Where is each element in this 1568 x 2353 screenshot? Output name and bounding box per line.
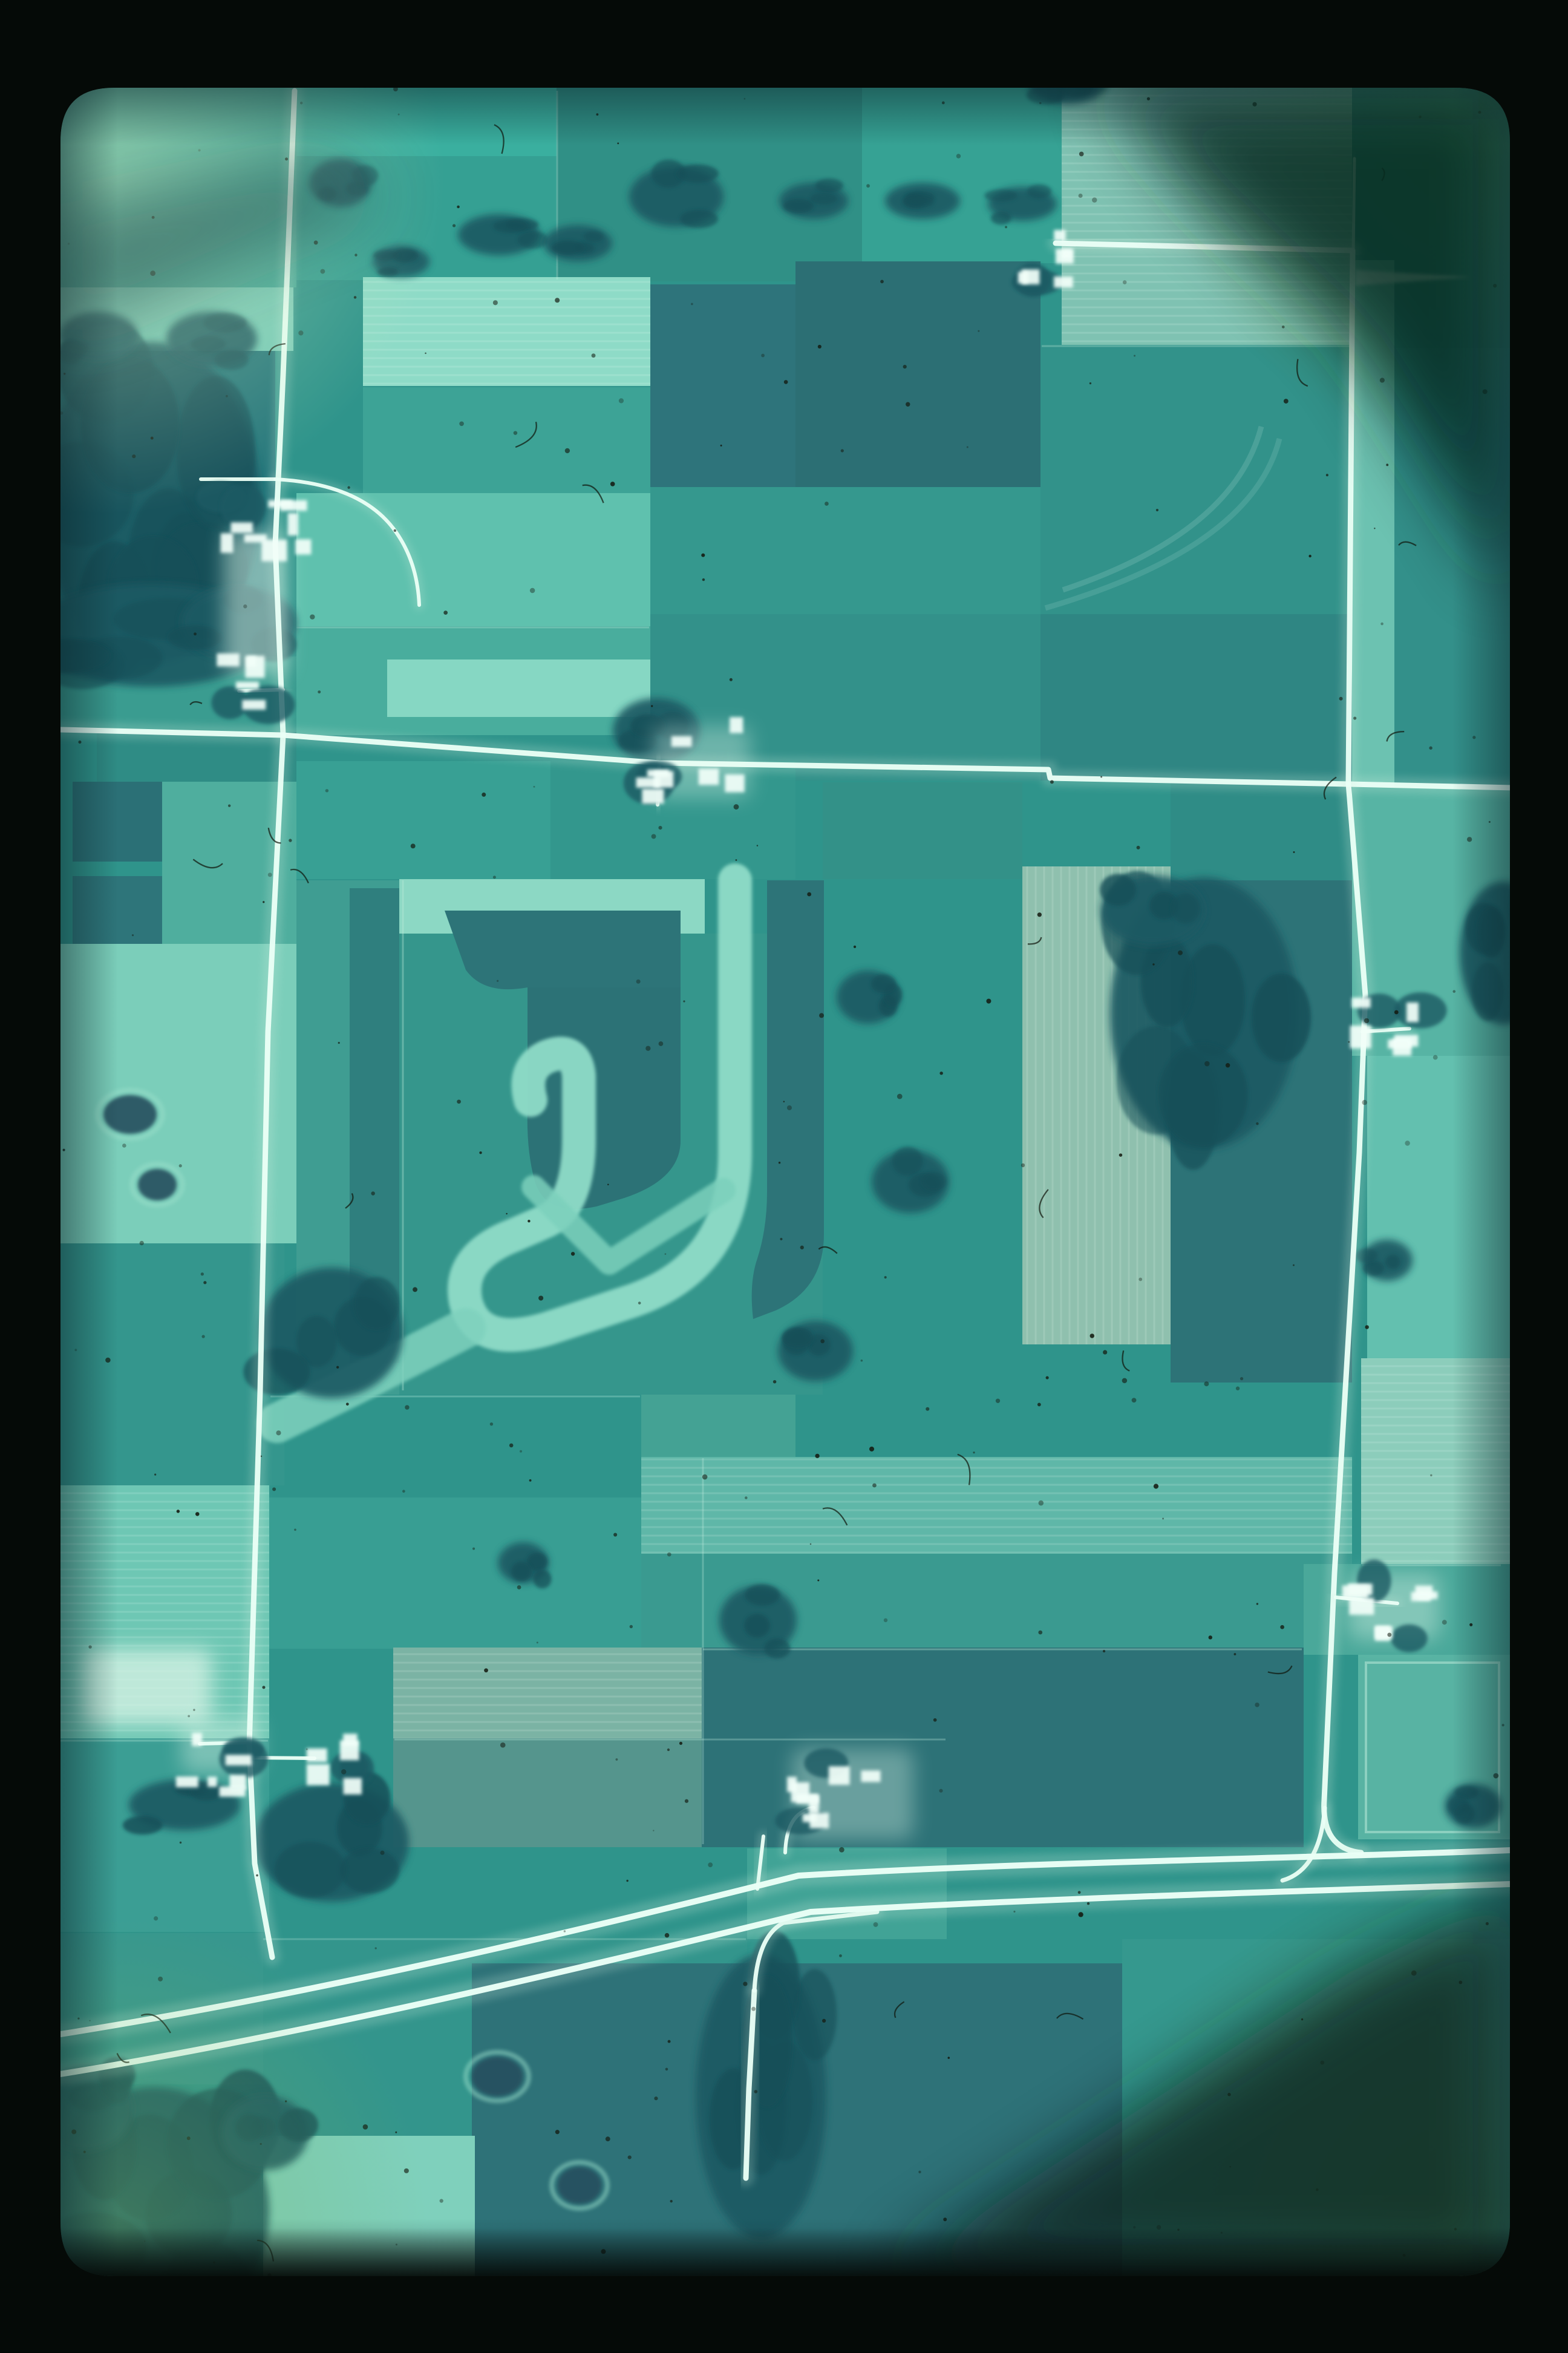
dust-speck xyxy=(380,1851,384,1855)
dust-speck xyxy=(533,786,535,788)
dust-speck xyxy=(256,1874,258,1877)
dust-speck xyxy=(606,2136,610,2141)
dust-speck xyxy=(1122,1378,1128,1384)
dust-speck xyxy=(659,1041,664,1046)
dust-speck xyxy=(1037,1402,1041,1406)
dust-speck xyxy=(154,1916,158,1920)
dust-speck xyxy=(289,839,292,842)
dust-speck xyxy=(490,1422,493,1425)
dust-speck xyxy=(986,999,991,1004)
dust-speck xyxy=(1326,474,1328,476)
dust-speck xyxy=(268,872,272,877)
farm-building xyxy=(221,533,234,552)
dust-speck xyxy=(679,1742,682,1745)
farm-building xyxy=(192,1733,202,1746)
dust-speck xyxy=(425,353,426,355)
dust-speck xyxy=(720,445,722,447)
dust-speck xyxy=(195,1512,200,1516)
dust-speck xyxy=(318,690,321,693)
field-rows-texture xyxy=(641,1457,1352,1554)
bottom-mount-fade xyxy=(60,2228,1510,2276)
dust-speck xyxy=(479,1151,482,1154)
farm-building xyxy=(642,789,664,804)
dust-speck xyxy=(869,1447,874,1451)
tree-clump xyxy=(892,1147,923,1176)
farm-building xyxy=(1406,1003,1419,1022)
tree-clump xyxy=(1252,974,1311,1062)
dust-speck xyxy=(839,1847,844,1853)
dust-speck xyxy=(1038,1631,1042,1635)
farm-building xyxy=(829,1766,850,1785)
farm-building xyxy=(295,539,311,554)
dust-speck xyxy=(336,1366,339,1369)
dust-speck xyxy=(1154,1484,1158,1488)
tree-clump xyxy=(680,210,718,228)
dust-speck xyxy=(341,1769,346,1774)
dust-speck xyxy=(820,1339,825,1343)
dust-speck xyxy=(537,1641,538,1643)
dust-speck xyxy=(1021,1163,1025,1167)
dust-speck xyxy=(1374,528,1375,529)
dust-speck xyxy=(1353,716,1356,719)
dust-speck xyxy=(154,1473,156,1475)
dust-speck xyxy=(1123,280,1127,284)
dust-speck xyxy=(1134,355,1135,356)
dust-speck xyxy=(1050,780,1054,784)
dust-speck xyxy=(1156,509,1158,511)
dust-speck xyxy=(371,1191,374,1195)
dust-speck xyxy=(193,1709,195,1710)
farm-shade-tree xyxy=(1394,992,1447,1028)
dust-speck xyxy=(996,1399,1000,1403)
dust-speck xyxy=(978,330,979,332)
dust-speck xyxy=(459,421,464,426)
dust-speck xyxy=(402,1490,405,1493)
dust-speck xyxy=(779,1162,780,1163)
farm-building xyxy=(671,736,692,747)
dust-speck xyxy=(272,1487,276,1491)
dust-speck xyxy=(1293,1265,1295,1266)
dust-speck xyxy=(497,980,498,982)
dust-speck xyxy=(784,380,788,384)
dust-speck xyxy=(1013,1911,1015,1913)
dust-speck xyxy=(1430,1474,1432,1476)
dust-speck xyxy=(1386,463,1388,466)
tree-clump xyxy=(810,193,837,205)
dust-speck xyxy=(1087,1902,1089,1905)
dust-speck xyxy=(800,1246,804,1249)
dust-speck xyxy=(1092,197,1097,202)
tree-clump xyxy=(1171,893,1200,923)
dust-speck xyxy=(658,826,662,830)
farm-building xyxy=(343,1778,362,1795)
field-patch xyxy=(296,493,650,626)
dust-speck xyxy=(177,1510,180,1513)
dust-speck xyxy=(702,1474,708,1480)
dust-speck xyxy=(443,610,448,615)
field-patch xyxy=(363,387,650,493)
dust-speck xyxy=(506,1213,507,1214)
dust-speck xyxy=(1293,851,1295,853)
dust-speck xyxy=(1348,1041,1350,1043)
dust-speck xyxy=(685,1799,688,1803)
dust-speck xyxy=(874,1922,878,1927)
dust-speck xyxy=(493,300,498,305)
dust-speck xyxy=(201,1272,204,1275)
dust-speck xyxy=(1364,1018,1369,1023)
dust-speck xyxy=(310,614,315,619)
dust-speck xyxy=(1005,226,1007,228)
farm-building xyxy=(787,1777,797,1792)
dust-speck xyxy=(1103,1350,1107,1354)
tree-clump xyxy=(991,212,1011,224)
farm-building xyxy=(242,700,266,710)
dust-speck xyxy=(668,2040,671,2043)
tree-clump xyxy=(783,199,814,214)
dust-speck xyxy=(761,354,765,358)
dust-speck xyxy=(1204,1061,1210,1067)
dust-speck xyxy=(736,859,737,861)
farm-building xyxy=(280,500,307,511)
dust-speck xyxy=(819,1013,824,1018)
dust-speck xyxy=(262,1686,265,1689)
tree-clump xyxy=(168,626,222,650)
farm-building xyxy=(1352,998,1371,1008)
dust-speck xyxy=(180,1842,181,1844)
dust-speck xyxy=(818,345,822,349)
edge-fade-left xyxy=(60,88,118,2276)
dust-speck xyxy=(374,1947,376,1949)
dust-speck xyxy=(783,1101,785,1102)
dust-speck xyxy=(773,1380,776,1383)
dust-speck xyxy=(933,1718,937,1722)
pond xyxy=(472,2057,523,2096)
dust-speck xyxy=(338,1042,340,1044)
tree-clump xyxy=(340,1848,399,1893)
farm-building xyxy=(725,774,744,793)
dust-speck xyxy=(926,1407,929,1411)
dust-speck xyxy=(884,1276,887,1278)
tree-clump xyxy=(494,220,528,233)
dust-speck xyxy=(500,1743,506,1748)
dust-speck xyxy=(807,892,811,897)
dust-speck xyxy=(555,2130,560,2134)
dust-speck xyxy=(1079,152,1084,157)
farm-building xyxy=(288,513,299,536)
dust-speck xyxy=(482,793,486,797)
dust-speck xyxy=(1178,951,1183,955)
tree-clump xyxy=(511,1562,532,1582)
dust-speck xyxy=(411,843,416,848)
dust-speck xyxy=(1078,1912,1083,1917)
edge-fade-top xyxy=(60,88,1510,145)
dust-speck xyxy=(897,1094,903,1099)
farm-building xyxy=(861,1770,880,1782)
dust-speck xyxy=(325,789,328,792)
dust-speck xyxy=(665,1933,670,1938)
dust-speck xyxy=(179,1164,182,1167)
dust-speck xyxy=(967,446,969,448)
field-patch xyxy=(650,284,795,487)
farm-building xyxy=(699,768,719,785)
dust-speck xyxy=(1442,1620,1447,1625)
dust-speck xyxy=(1100,776,1102,778)
dust-speck xyxy=(1365,1325,1368,1329)
dust-speck xyxy=(839,1954,842,1957)
dust-speck xyxy=(1256,1122,1258,1125)
dust-speck xyxy=(1405,1141,1410,1145)
farm-building xyxy=(1062,249,1071,258)
tree-clump xyxy=(815,178,843,192)
dust-speck xyxy=(757,845,758,846)
farm-building xyxy=(245,656,264,678)
dust-speck xyxy=(1103,1650,1105,1652)
dust-speck xyxy=(701,554,705,557)
tree-clump xyxy=(123,1816,163,1834)
dust-speck xyxy=(194,632,197,635)
dust-speck xyxy=(822,2019,826,2023)
pond xyxy=(558,2167,601,2204)
tree-clump xyxy=(1100,874,1136,906)
dust-speck xyxy=(683,1000,685,1002)
dust-speck xyxy=(939,1789,942,1793)
dust-speck xyxy=(810,1543,812,1545)
farm-building xyxy=(1054,230,1065,241)
dust-speck xyxy=(645,1046,650,1051)
farm-building xyxy=(1022,269,1040,284)
dust-speck xyxy=(1089,382,1091,384)
dust-speck xyxy=(440,2199,443,2202)
farm-building xyxy=(1393,1039,1411,1056)
aerial-photograph xyxy=(0,0,1568,2352)
tree-clump xyxy=(1385,1255,1400,1269)
dust-speck xyxy=(457,206,460,209)
dust-speck xyxy=(956,154,961,158)
farm-building xyxy=(1054,277,1073,288)
dust-speck xyxy=(667,1749,670,1751)
dust-speck xyxy=(872,1484,877,1488)
dust-speck xyxy=(626,1880,628,1882)
dust-speck xyxy=(1226,1063,1230,1067)
dust-speck xyxy=(509,1444,514,1448)
dust-speck xyxy=(1078,1891,1081,1894)
dust-speck xyxy=(452,224,456,227)
dust-speck xyxy=(413,1287,417,1292)
tree-clump xyxy=(745,1585,780,1606)
dust-speck xyxy=(530,588,535,593)
farm-building xyxy=(340,1740,359,1760)
dust-speck xyxy=(866,184,870,188)
tree-clump xyxy=(921,1172,946,1191)
dust-speck xyxy=(276,1430,281,1435)
field-patch xyxy=(823,782,1022,879)
dust-speck xyxy=(841,449,844,452)
edge-fade-right xyxy=(1452,88,1510,2276)
dust-speck xyxy=(529,1479,532,1482)
dust-speck xyxy=(653,1830,654,1831)
dust-speck xyxy=(884,1618,887,1622)
farm-building xyxy=(226,1755,252,1765)
dust-speck xyxy=(1284,399,1289,404)
field-patch xyxy=(269,1497,641,1649)
dust-speck xyxy=(472,1548,475,1550)
dust-speck xyxy=(1255,1703,1259,1707)
tree-clump xyxy=(984,189,1017,201)
tree-clump xyxy=(744,1614,769,1637)
dust-speck xyxy=(918,2171,921,2173)
dust-speck xyxy=(457,1099,461,1104)
dust-speck xyxy=(294,1528,296,1531)
dust-speck xyxy=(636,980,641,984)
dust-speck xyxy=(1339,697,1343,701)
dust-speck xyxy=(610,482,615,486)
dust-speck xyxy=(948,2057,950,2059)
dust-speck xyxy=(1039,1500,1044,1506)
dust-speck xyxy=(520,1450,522,1453)
contour-dark-strip xyxy=(445,911,681,989)
field-patch xyxy=(795,261,1040,488)
farm-building xyxy=(1349,1598,1374,1615)
dust-speck xyxy=(347,486,350,489)
dust-speck xyxy=(203,1281,206,1284)
tree-clump xyxy=(552,240,584,255)
dust-speck xyxy=(654,2096,658,2100)
farm-building xyxy=(236,682,259,689)
dust-speck xyxy=(615,1758,618,1761)
dust-speck xyxy=(751,2007,756,2011)
tree-clump xyxy=(1158,1043,1247,1147)
dust-speck xyxy=(861,1360,863,1362)
dust-speck xyxy=(665,1253,667,1255)
dust-speck xyxy=(754,2090,758,2093)
dust-speck xyxy=(638,1301,641,1304)
dust-speck xyxy=(261,1456,262,1457)
dust-speck xyxy=(538,1296,543,1301)
dust-speck xyxy=(1256,1603,1258,1605)
dust-speck xyxy=(1280,1625,1284,1629)
tree-clump xyxy=(903,195,934,208)
dust-speck xyxy=(1046,1376,1049,1379)
dust-speck xyxy=(630,1625,633,1628)
dust-speck xyxy=(1119,1153,1122,1156)
dust-speck xyxy=(1152,963,1154,965)
dust-speck xyxy=(201,1335,204,1338)
dust-speck xyxy=(939,1072,942,1075)
farm-building xyxy=(261,540,287,561)
dust-speck xyxy=(730,678,733,681)
dust-speck xyxy=(1204,1381,1209,1386)
dust-speck xyxy=(493,875,496,879)
dust-speck xyxy=(1433,1055,1438,1060)
dust-speck xyxy=(140,1241,144,1245)
farm-building xyxy=(1350,1026,1371,1049)
dust-speck xyxy=(564,1930,566,1932)
farm-building xyxy=(653,771,673,787)
dust-speck xyxy=(571,1252,575,1255)
dust-speck xyxy=(903,365,907,368)
farm-building xyxy=(207,1776,217,1787)
dust-speck xyxy=(484,1668,488,1672)
photo-area xyxy=(0,0,1568,2352)
dust-speck xyxy=(306,1749,308,1750)
dust-speck xyxy=(1308,555,1311,557)
tree-clump xyxy=(353,1277,399,1330)
dust-speck xyxy=(1162,1517,1164,1519)
dust-speck xyxy=(1079,194,1083,198)
dust-speck xyxy=(132,934,134,936)
dust-speck xyxy=(565,448,570,453)
dust-speck xyxy=(973,1451,975,1453)
dust-speck xyxy=(1233,1653,1236,1655)
farm-building xyxy=(1342,1585,1368,1599)
farm-building xyxy=(307,1764,330,1785)
dust-speck xyxy=(745,1496,748,1499)
aerial-photo-slide: Color-infrared style aerial photograph s… xyxy=(0,0,1568,2352)
farm-building xyxy=(176,1776,198,1787)
tree-clump xyxy=(782,1327,814,1348)
dust-speck xyxy=(734,804,739,810)
dust-speck xyxy=(346,1402,349,1406)
farm-building xyxy=(809,1813,829,1828)
dust-speck xyxy=(1240,1377,1243,1380)
dust-speck xyxy=(517,1585,521,1589)
dust-speck xyxy=(1394,1010,1399,1015)
farm-building xyxy=(1411,1592,1431,1601)
farm-building xyxy=(307,1749,327,1762)
dust-speck xyxy=(1209,1635,1212,1639)
dust-speck xyxy=(1362,1100,1367,1105)
tree-clump xyxy=(677,165,719,183)
dust-speck xyxy=(787,1105,792,1110)
dust-speck xyxy=(607,1183,609,1185)
dust-speck xyxy=(691,303,693,306)
dust-speck xyxy=(1387,1632,1391,1637)
dust-speck xyxy=(665,2068,668,2071)
farm-shade-tree xyxy=(1391,1625,1427,1652)
dust-speck xyxy=(619,398,624,403)
dust-speck xyxy=(592,353,596,358)
dust-speck xyxy=(613,1533,617,1537)
contour-dark-strip xyxy=(528,987,681,1209)
farm-building xyxy=(809,1795,819,1814)
dust-speck xyxy=(817,1579,819,1581)
dust-speck xyxy=(652,834,656,839)
dust-speck xyxy=(854,946,856,948)
dust-speck xyxy=(780,1238,782,1240)
farm-building xyxy=(730,717,743,733)
dust-speck xyxy=(1132,1398,1137,1402)
dust-speck xyxy=(1236,1387,1240,1390)
farm-building xyxy=(217,653,240,666)
dust-speck xyxy=(528,1220,530,1222)
dust-speck xyxy=(1380,623,1383,626)
dust-speck xyxy=(1090,1334,1094,1338)
tree-clump xyxy=(1027,185,1051,198)
dust-speck xyxy=(263,901,264,903)
dust-speck xyxy=(743,1982,747,1986)
dust-speck xyxy=(651,705,653,707)
farm-building xyxy=(229,1775,246,1790)
dust-speck xyxy=(815,1454,819,1458)
field-patch xyxy=(1040,614,1352,781)
field-patch xyxy=(387,659,650,717)
dust-speck xyxy=(188,1715,190,1717)
field-patch xyxy=(296,761,550,879)
dust-speck xyxy=(825,502,829,506)
dust-speck xyxy=(405,1405,409,1409)
dust-speck xyxy=(555,298,560,303)
dust-speck xyxy=(670,2200,673,2202)
